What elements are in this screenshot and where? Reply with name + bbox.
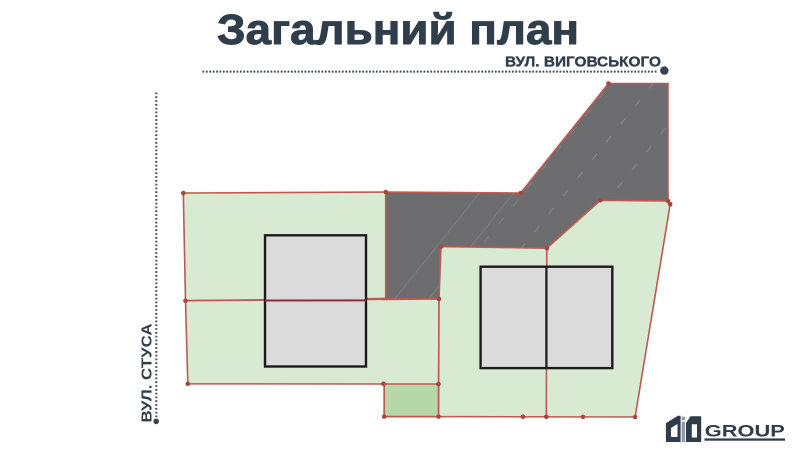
svg-text:Загальний план: Загальний план xyxy=(217,6,579,54)
svg-text:ВУЛ. СТУСА: ВУЛ. СТУСА xyxy=(138,323,155,422)
svg-text:GROUP: GROUP xyxy=(705,423,785,441)
svg-text:ВУЛ. ВИГОВСЬКОГО: ВУЛ. ВИГОВСЬКОГО xyxy=(505,54,661,71)
